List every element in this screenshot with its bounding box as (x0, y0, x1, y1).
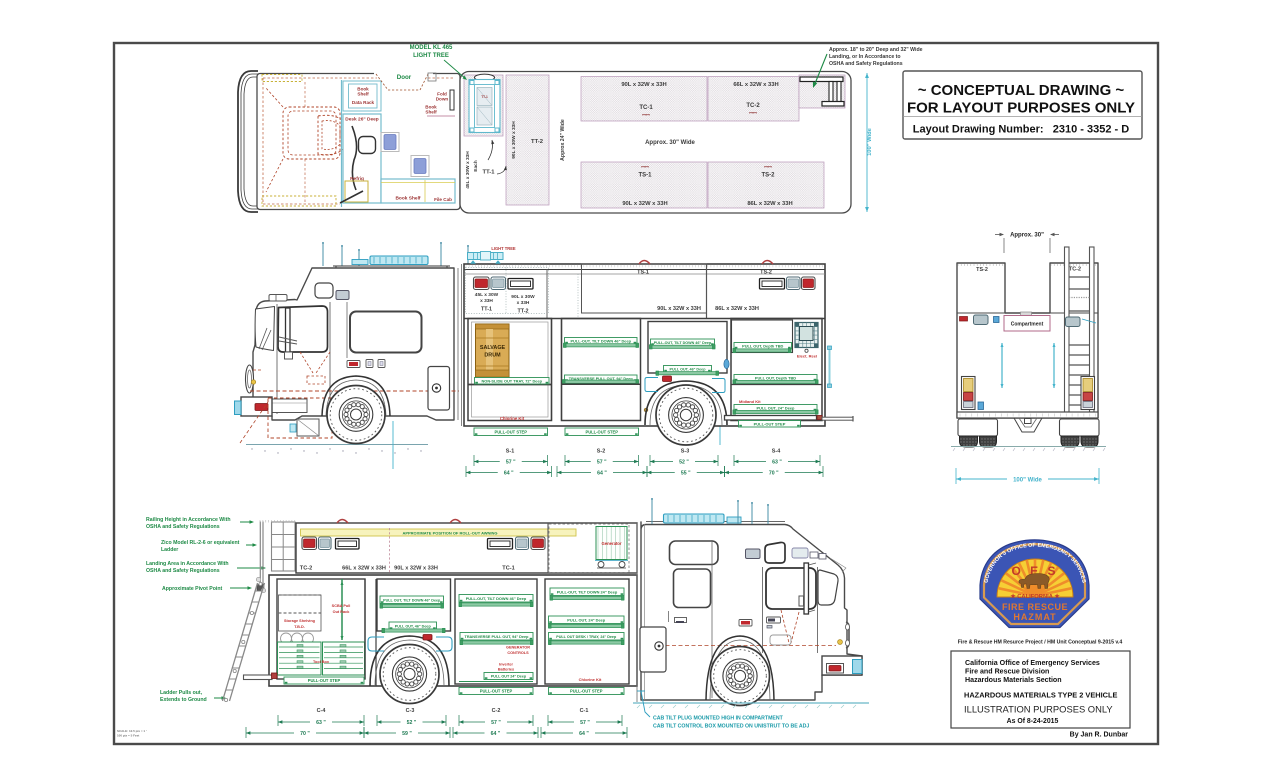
svg-text:PULL OUT, 24" Deep: PULL OUT, 24" Deep (757, 405, 796, 410)
svg-text:55 ": 55 " (681, 471, 691, 477)
svg-text:Approximate Pivot Point: Approximate Pivot Point (162, 586, 223, 592)
svg-text:⊶⊷: ⊶⊷ (749, 110, 757, 115)
svg-text:Book Shelf: Book Shelf (395, 196, 420, 202)
svg-text:70 ": 70 " (769, 471, 779, 477)
svg-text:PULL OUT, Depth TBD: PULL OUT, Depth TBD (755, 375, 796, 380)
svg-text:PULL-OUT STEP: PULL-OUT STEP (494, 429, 527, 434)
svg-text:52 ": 52 " (407, 720, 417, 726)
svg-text:Fire & Rescue HM Resurce Proje: Fire & Rescue HM Resurce Project / HM Un… (958, 640, 1123, 646)
svg-text:TT-1: TT-1 (483, 170, 496, 176)
svg-text:S-2: S-2 (597, 449, 605, 455)
svg-text:TC-2: TC-2 (746, 103, 760, 109)
svg-text:PULL OUT, 24" Deep: PULL OUT, 24" Deep (567, 617, 606, 622)
svg-text:Approx. 30" Wide: Approx. 30" Wide (645, 140, 695, 146)
svg-text:HAZARDOUS MATERIALS TYPE 2 VEH: HAZARDOUS MATERIALS TYPE 2 VEHICLE (964, 691, 1118, 700)
svg-text:x 33H: x 33H (480, 298, 493, 304)
svg-text:NON-SLIDE OUT TRAY, 72" Deep: NON-SLIDE OUT TRAY, 72" Deep (481, 378, 542, 383)
svg-text:PULL-OUT, TILT DOWN 24" Deep: PULL-OUT, TILT DOWN 24" Deep (557, 589, 618, 594)
svg-text:Approx. 18" to 20" Deep and 32: Approx. 18" to 20" Deep and 32" Wide (829, 47, 923, 53)
svg-text:OSHA and Safety Regulations: OSHA and Safety Regulations (829, 61, 903, 67)
svg-text:TT-2: TT-2 (517, 309, 528, 315)
svg-text:FIRE RESCUE: FIRE RESCUE (1002, 602, 1068, 612)
svg-text:Inverter: Inverter (499, 663, 513, 667)
svg-text:OSHA and Safety Regulations: OSHA and Safety Regulations (146, 524, 220, 530)
svg-text:90L x 32W x 33H: 90L x 32W x 33H (622, 201, 667, 207)
svg-text:100" Wide: 100" Wide (867, 127, 873, 156)
svg-text:59 ": 59 " (402, 731, 412, 737)
svg-text:Elect. Reel: Elect. Reel (797, 354, 817, 359)
svg-text:CONTROLS: CONTROLS (507, 651, 529, 655)
svg-text:LIGHT TREE: LIGHT TREE (491, 246, 516, 251)
svg-text:TS-1: TS-1 (638, 173, 652, 179)
svg-text:TS-2: TS-2 (761, 173, 775, 179)
svg-text:Approx 24" Wide: Approx 24" Wide (560, 119, 566, 161)
svg-text:PULL OUT 24" Deep: PULL OUT 24" Deep (491, 675, 527, 679)
svg-text:Door: Door (397, 74, 412, 81)
svg-text:PULL OUT, 46" Deep: PULL OUT, 46" Deep (670, 367, 707, 371)
svg-text:⊶⊷: ⊶⊷ (642, 112, 650, 117)
svg-text:57 ": 57 " (597, 460, 607, 466)
svg-text:PULL-OUT STEP: PULL-OUT STEP (308, 678, 341, 683)
svg-text:Batteries: Batteries (498, 668, 514, 672)
svg-text:x 33H: x 33H (517, 300, 530, 306)
svg-text:PULL-OUT, TILT DOWN 46" Deep: PULL-OUT, TILT DOWN 46" Deep (466, 596, 527, 601)
svg-text:CAB TILT PLUG MOUNTED HIGH IN: CAB TILT PLUG MOUNTED HIGH IN COMPARTMEN… (653, 716, 784, 722)
svg-text:C-1: C-1 (580, 708, 589, 714)
svg-text:SALVAGE: SALVAGE (480, 345, 506, 351)
svg-text:Shelf: Shelf (425, 110, 437, 115)
svg-text:C-4: C-4 (317, 708, 326, 714)
svg-text:PULL-OUT STEP: PULL-OUT STEP (754, 421, 786, 426)
svg-text:100 pix = 5 Feet: 100 pix = 5 Feet (117, 734, 139, 738)
svg-text:Ladder Pulls out,: Ladder Pulls out, (160, 690, 203, 696)
svg-text:Each: Each (473, 160, 479, 172)
svg-text:TC-2: TC-2 (1069, 267, 1081, 273)
svg-text:90L x 30W x 33H: 90L x 30W x 33H (511, 121, 517, 159)
svg-text:DRUM: DRUM (484, 353, 501, 359)
svg-text:Generator: Generator (601, 541, 621, 546)
svg-text:PULL OUT, TILT DOWN 46" Deep: PULL OUT, TILT DOWN 46" Deep (383, 598, 441, 602)
svg-text:TT-2: TT-2 (531, 139, 543, 145)
svg-text:⊶⊷: ⊶⊷ (764, 164, 772, 169)
svg-text:TS-2: TS-2 (976, 267, 988, 273)
svg-text:Out Rack: Out Rack (333, 610, 351, 614)
svg-text:APPROXIMATE POSITION OF ROLL-O: APPROXIMATE POSITION OF ROLL-OUT AWNING (402, 531, 497, 536)
svg-text:Landing Area in Accordance Wit: Landing Area in Accordance With (146, 561, 229, 567)
svg-text:Extends to Ground: Extends to Ground (160, 697, 207, 703)
svg-text:PULL-OUT STEP: PULL-OUT STEP (570, 689, 603, 694)
svg-text:TS-1: TS-1 (637, 270, 649, 276)
svg-text:C-3: C-3 (406, 708, 415, 714)
svg-text:Zico Model RL-2-6 or equivalen: Zico Model RL-2-6 or equivalent (161, 540, 240, 546)
svg-text:S-1: S-1 (506, 449, 514, 455)
svg-text:Landing, or In Accordance to: Landing, or In Accordance to (829, 54, 901, 60)
svg-text:90L x 32W x 33H: 90L x 32W x 33H (657, 306, 701, 312)
svg-text:70 ": 70 " (300, 731, 310, 737)
svg-text:64 ": 64 " (491, 731, 501, 737)
svg-text:Approx. 30": Approx. 30" (1010, 233, 1044, 239)
svg-text:52 ": 52 " (679, 460, 689, 466)
svg-text:PULL OUT, Depth TBD: PULL OUT, Depth TBD (742, 343, 783, 348)
svg-text:As Of 8-24-2015: As Of 8-24-2015 (1007, 718, 1059, 725)
svg-text:MODEL KL 465: MODEL KL 465 (410, 45, 453, 51)
svg-text:File Cab: File Cab (434, 197, 452, 202)
svg-text:64 ": 64 " (597, 471, 607, 477)
svg-text:Compartment: Compartment (1011, 322, 1044, 328)
svg-text:TT-1: TT-1 (481, 95, 488, 99)
svg-text:90L x 32W x 33H: 90L x 32W x 33H (394, 566, 438, 572)
svg-text:90L x 30W: 90L x 30W (511, 294, 535, 300)
svg-text:Hazardous Materials Section: Hazardous Materials Section (965, 676, 1062, 684)
svg-text:90L x 32W x 33H: 90L x 32W x 33H (621, 82, 666, 88)
svg-text:Tool Box: Tool Box (313, 660, 330, 664)
svg-text:Desk 26" Deep: Desk 26" Deep (345, 117, 379, 123)
svg-text:Midland Kit: Midland Kit (739, 399, 761, 404)
svg-text:57 ": 57 " (506, 460, 516, 466)
svg-text:★ CALIFORNIA ★: ★ CALIFORNIA ★ (1010, 593, 1060, 600)
svg-text:HAZMAT: HAZMAT (1013, 612, 1056, 622)
svg-text:Data Rack: Data Rack (352, 100, 375, 105)
svg-text:⊶⊷: ⊶⊷ (641, 164, 649, 169)
svg-text:SCBA Pull: SCBA Pull (332, 604, 351, 608)
svg-text:OSHA and Safety Regulations: OSHA and Safety Regulations (146, 568, 220, 574)
svg-text:63 ": 63 " (316, 720, 326, 726)
svg-text:By Jan R. Dunbar: By Jan R. Dunbar (1070, 732, 1129, 739)
svg-text:TRANSVERSE PULL OUT, 94" Deep: TRANSVERSE PULL OUT, 94" Deep (465, 635, 530, 639)
svg-text:64 ": 64 " (504, 471, 514, 477)
svg-text:66L x 32W x 33H: 66L x 32W x 33H (733, 82, 778, 88)
svg-text:86L x 32W x 33H: 86L x 32W x 33H (715, 306, 759, 312)
svg-text:TC-1: TC-1 (639, 105, 653, 111)
svg-text:66L x 32W x 33H: 66L x 32W x 33H (342, 566, 386, 572)
svg-text:100" Wide: 100" Wide (1013, 478, 1042, 484)
svg-text:ILLUSTRATION PURPOSES ONLY: ILLUSTRATION PURPOSES ONLY (964, 704, 1113, 715)
svg-text:PULL-OUT STEP: PULL-OUT STEP (585, 429, 618, 434)
svg-text:California Office of Emergency: California Office of Emergency Services (965, 659, 1100, 667)
svg-text:PULL-OUT STEP: PULL-OUT STEP (480, 689, 513, 694)
svg-text:~ CONCEPTUAL DRAWING ~: ~ CONCEPTUAL DRAWING ~ (918, 82, 1125, 99)
svg-text:86L x 32W x 33H: 86L x 32W x 33H (747, 201, 792, 207)
svg-text:57 ": 57 " (580, 720, 590, 726)
svg-text:Chlorine Kit: Chlorine Kit (579, 677, 602, 682)
svg-text:TC-2: TC-2 (300, 566, 312, 572)
svg-text:45L x 30W x 33H: 45L x 30W x 33H (465, 151, 471, 189)
svg-text:PULL OUT DESK / TRAY, 24" Deep: PULL OUT DESK / TRAY, 24" Deep (556, 635, 617, 639)
svg-text:PULL-OUT, TILT DOWN 46" Deep: PULL-OUT, TILT DOWN 46" Deep (570, 338, 631, 343)
svg-text:TS-2: TS-2 (760, 270, 772, 276)
svg-text:C-2: C-2 (492, 708, 501, 714)
svg-text:Down: Down (436, 97, 449, 102)
svg-text:FOR LAYOUT PURPOSES ONLY: FOR LAYOUT PURPOSES ONLY (907, 100, 1135, 117)
svg-text:Layout Drawing Number: 2310: Layout Drawing Number: 2310 - 3352 - D (913, 124, 1129, 136)
svg-text:TC-1: TC-1 (502, 566, 514, 572)
svg-text:Ladder: Ladder (161, 547, 178, 553)
svg-text:63 ": 63 " (772, 460, 782, 466)
svg-text:64 ": 64 " (579, 731, 589, 737)
svg-text:57 ": 57 " (491, 720, 501, 726)
svg-text:CAB TILT CONTROL BOX MOUNTED O: CAB TILT CONTROL BOX MOUNTED ON UNISTRUT… (653, 724, 809, 730)
svg-text:LIGHT TREE: LIGHT TREE (413, 53, 449, 59)
svg-text:Shelf: Shelf (357, 92, 369, 97)
svg-text:Storage Shelving: Storage Shelving (284, 619, 316, 623)
svg-text:PULL-OUT, TILT DOWN 46" Deep: PULL-OUT, TILT DOWN 46" Deep (654, 341, 712, 345)
svg-text:SCALE: 12.5 pix = 1 ': SCALE: 12.5 pix = 1 ' (117, 729, 147, 733)
svg-text:Chlorine Kit: Chlorine Kit (500, 416, 525, 421)
svg-text:PULL OUT, 46" Deep: PULL OUT, 46" Deep (395, 624, 432, 628)
svg-text:Fire and Rescue Division: Fire and Rescue Division (965, 668, 1049, 676)
svg-text:TT-1: TT-1 (481, 307, 492, 313)
svg-text:S-3: S-3 (681, 449, 689, 455)
svg-text:T.B.D.: T.B.D. (294, 625, 305, 629)
svg-text:45L x 30W: 45L x 30W (475, 292, 499, 298)
svg-text:Railing Height in Accordance W: Railing Height in Accordance With (146, 517, 231, 523)
svg-text:S-4: S-4 (772, 449, 780, 455)
svg-text:GENERATOR: GENERATOR (506, 646, 530, 650)
